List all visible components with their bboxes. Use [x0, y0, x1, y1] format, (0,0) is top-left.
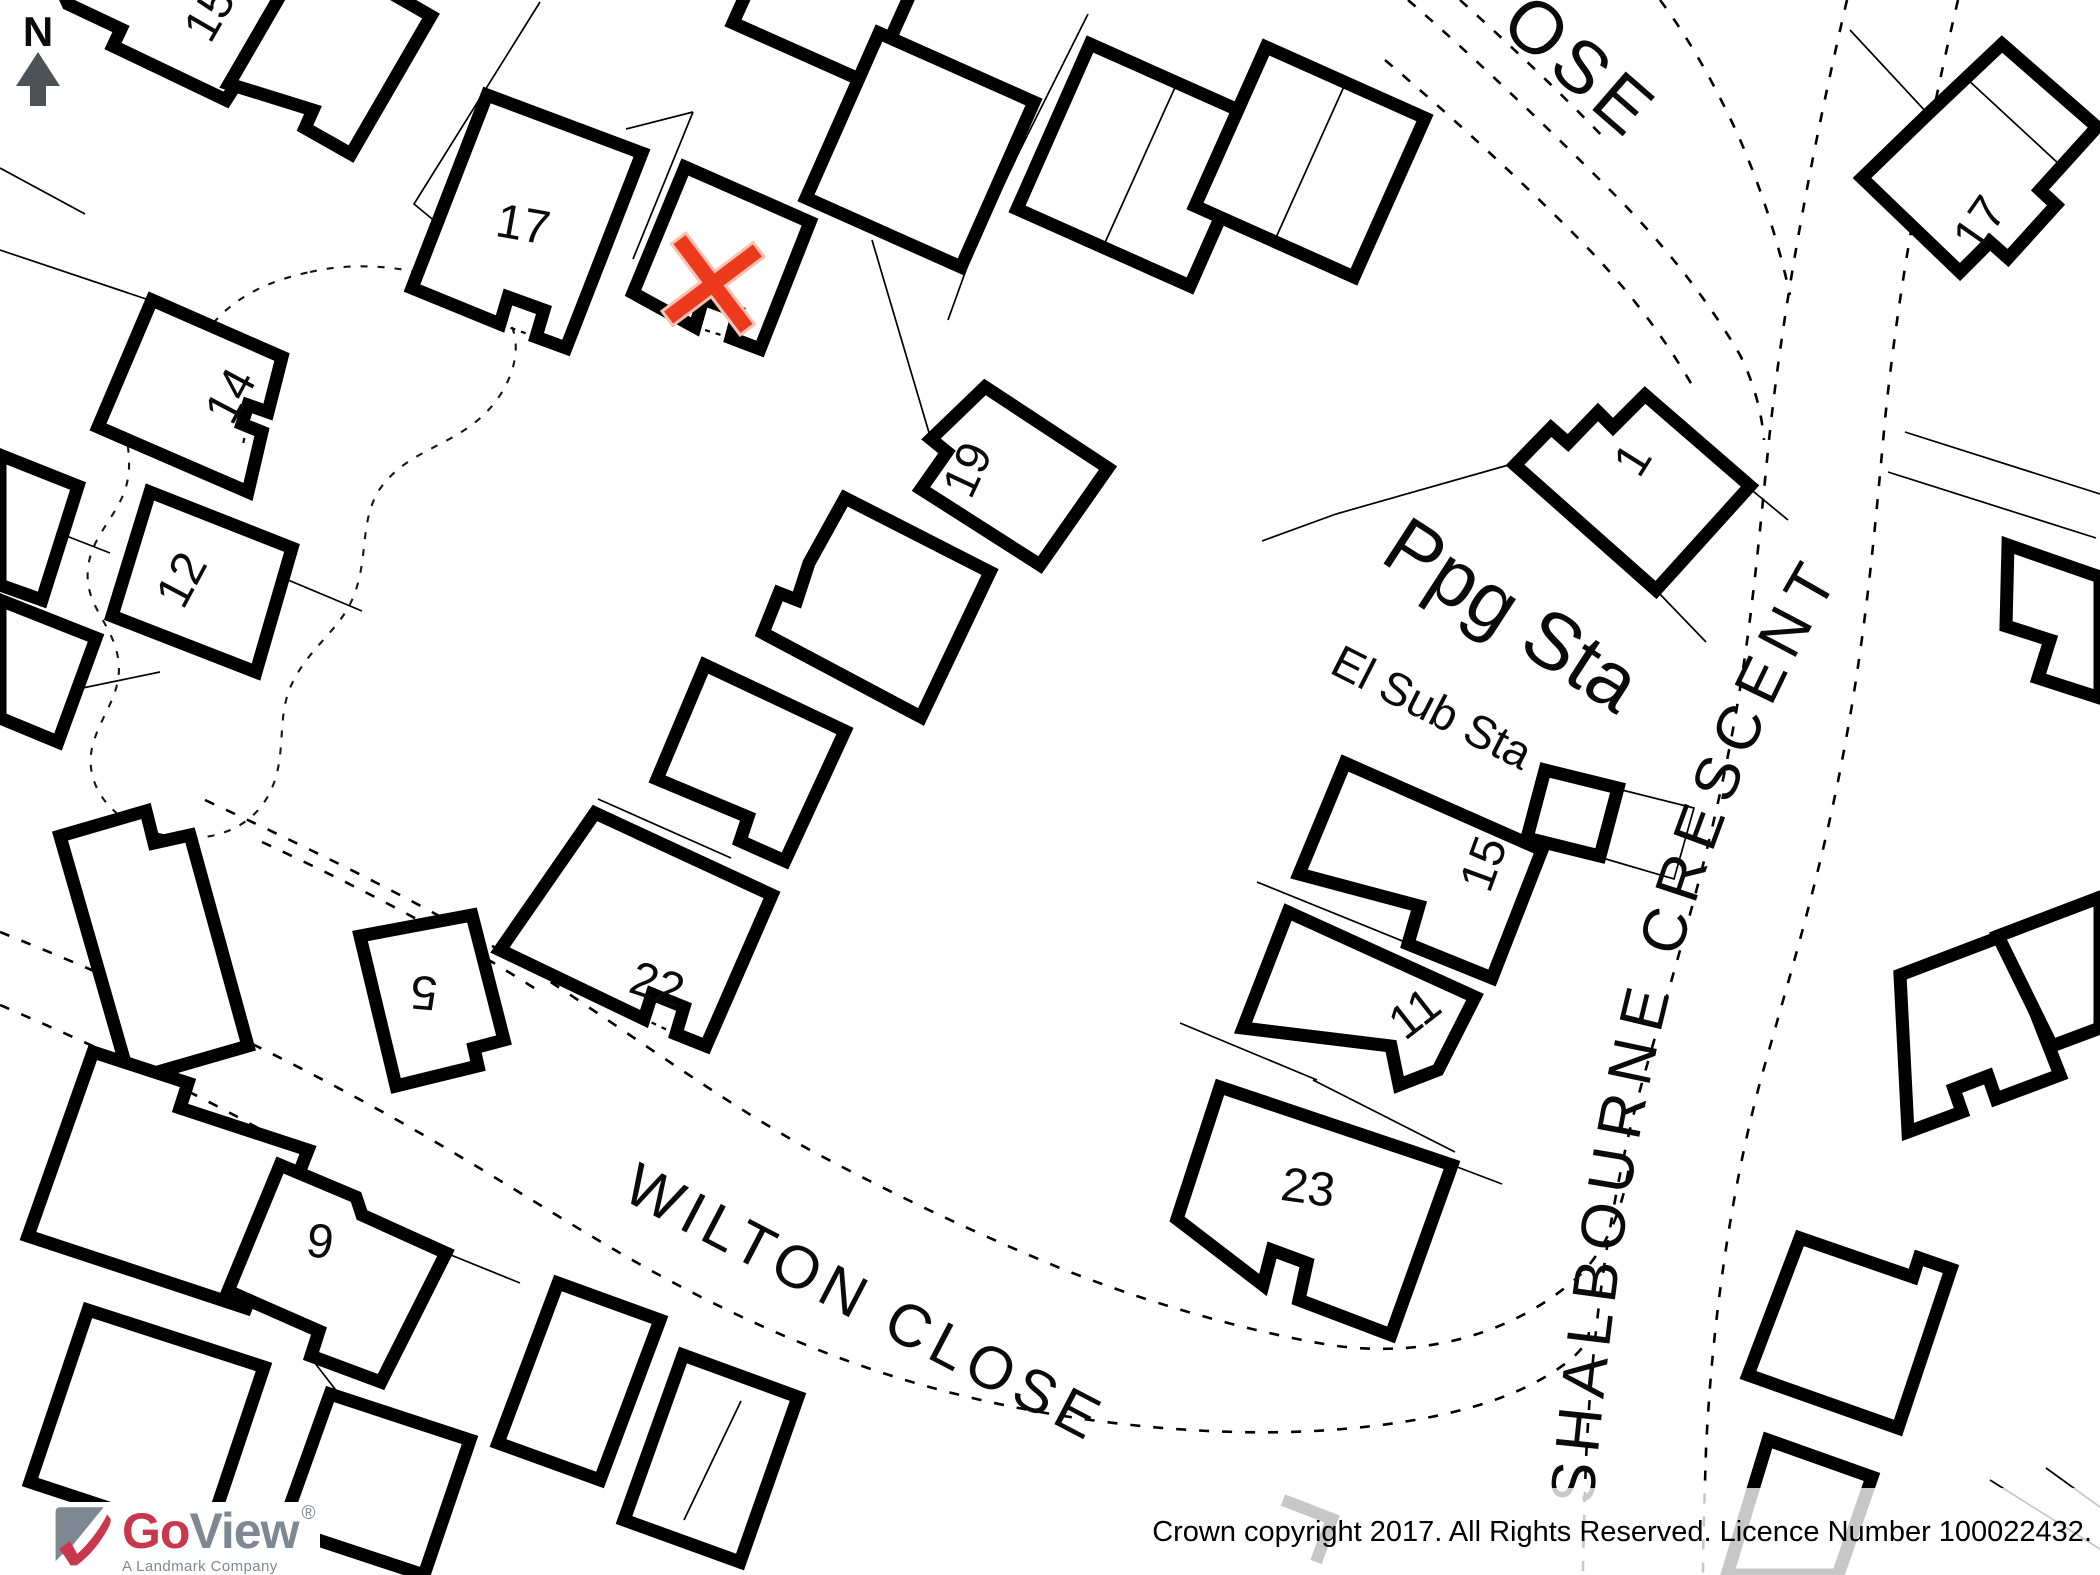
building-outline [0, 455, 78, 600]
street-label-partial: OSE [1488, 0, 1674, 154]
logo-word-view: View [189, 1506, 298, 1556]
north-arrow: N [16, 8, 60, 106]
parcel-line [1905, 432, 2100, 494]
map-page: 15 17 14 12 19 22 9 5 23 11 15 1 17 Ppg … [0, 0, 2100, 1575]
goview-logo: GoView® A Landmark Company [50, 1502, 320, 1575]
building-outline [0, 600, 96, 742]
building-outline [60, 811, 248, 1080]
building-outline [229, 0, 431, 154]
north-arrow-letter: N [23, 8, 53, 55]
building-number-label: 23 [1278, 1158, 1338, 1218]
parcel-line [0, 250, 152, 301]
building-outline [498, 1283, 660, 1480]
parcel-line [0, 168, 85, 214]
parcel-line [626, 112, 693, 129]
parcel-line [1850, 30, 1928, 114]
building-outline [657, 665, 845, 861]
copyright-text: Crown copyright 2017. All Rights Reserve… [1152, 1516, 2092, 1549]
parcel-line [1262, 464, 1512, 541]
logo-word-go: Go [122, 1506, 189, 1556]
logo-tagline: A Landmark Company [122, 1559, 312, 1574]
buildings [0, 0, 2100, 1575]
building-outline [2006, 545, 2100, 698]
building-number-label: 5 [408, 964, 439, 1019]
building-outline [763, 498, 990, 717]
parcel-line [1656, 590, 1706, 642]
parcel-line [1888, 472, 2096, 538]
map-canvas: 15 17 14 12 19 22 9 5 23 11 15 1 17 Ppg … [0, 0, 2100, 1575]
parcel-line [1748, 487, 1788, 520]
north-arrow-icon [16, 52, 60, 106]
building-outline [1515, 395, 1750, 590]
building-outline [228, 1165, 446, 1382]
logo-text: GoView® A Landmark Company [122, 1506, 312, 1574]
building-outline [500, 813, 772, 1046]
building-outline [1748, 1238, 1951, 1428]
parcel-line [872, 240, 930, 436]
registered-mark: ® [301, 1504, 315, 1523]
goview-logo-icon [52, 1506, 112, 1566]
parcel-line [446, 1253, 520, 1283]
road-edge [1660, 0, 1790, 295]
parcel-line [1452, 1165, 1502, 1184]
building-number-label: 17 [492, 194, 554, 255]
building-outline [624, 1355, 798, 1562]
